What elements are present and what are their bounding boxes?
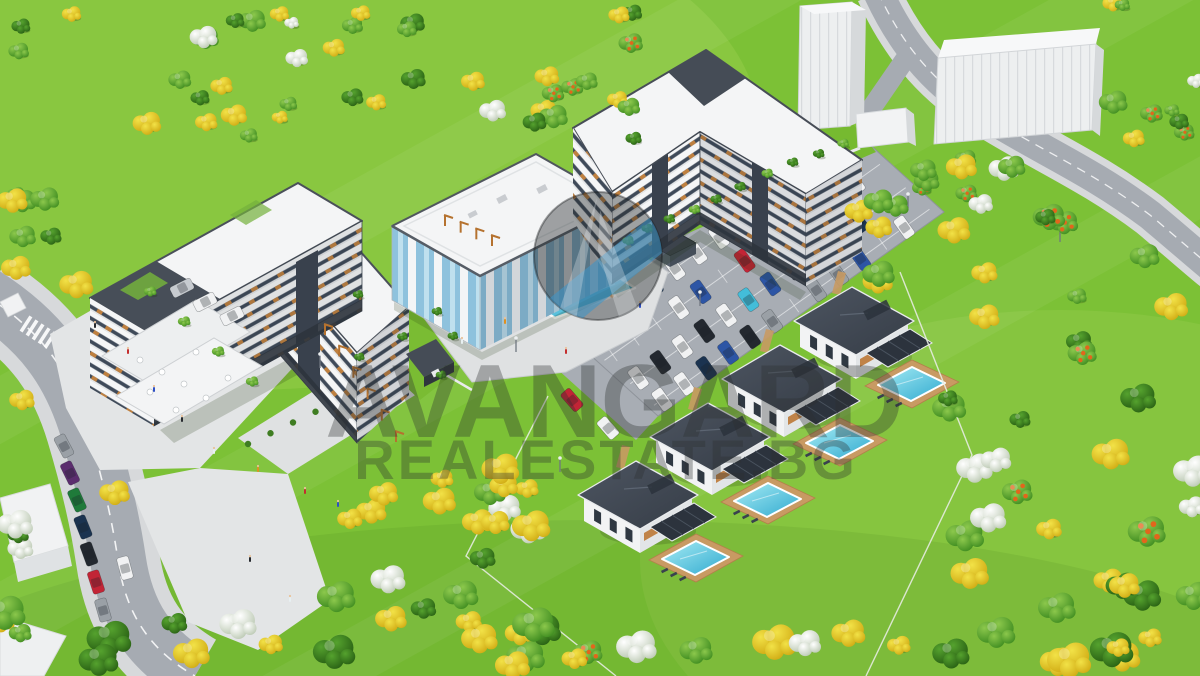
aerial-scene	[0, 0, 1200, 676]
real-estate-aerial-render: AVANGARD REALESTATE.BG	[0, 0, 1200, 676]
context-building-slab	[934, 28, 1104, 144]
context-building-tall	[798, 2, 866, 130]
context-building-small	[856, 108, 916, 148]
